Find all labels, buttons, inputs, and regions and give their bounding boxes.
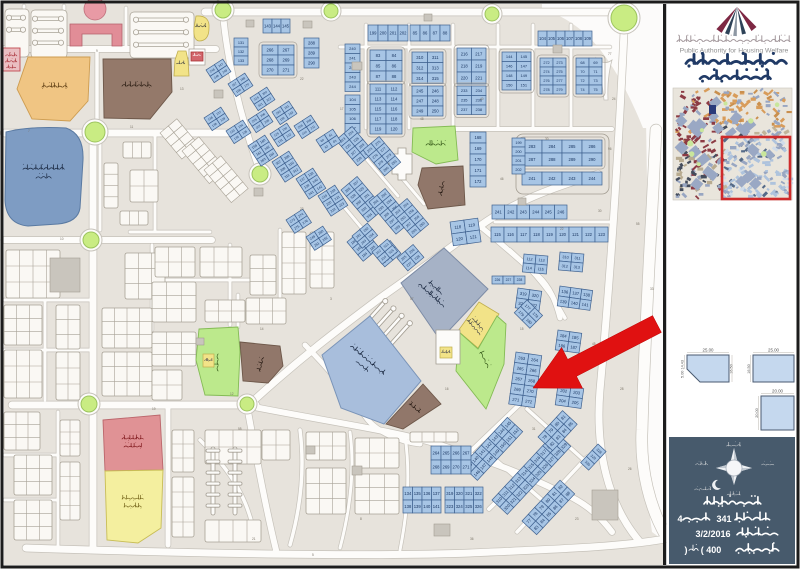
svg-text:113: 113 (538, 258, 544, 263)
svg-text:147: 147 (520, 64, 527, 69)
svg-text:138: 138 (583, 292, 591, 298)
svg-text:120: 120 (559, 232, 567, 237)
svg-text:135: 135 (414, 491, 422, 496)
svg-text:268: 268 (433, 465, 441, 470)
svg-text:171: 171 (475, 168, 483, 173)
svg-text:201: 201 (515, 159, 521, 163)
svg-text:104: 104 (539, 36, 547, 41)
svg-text:105: 105 (548, 36, 556, 41)
svg-text:73: 73 (593, 79, 597, 83)
svg-text:16.50: 16.50 (730, 364, 734, 374)
svg-text:219: 219 (475, 64, 483, 69)
svg-text:141: 141 (433, 504, 441, 509)
svg-text:168: 168 (475, 135, 483, 140)
svg-text:4: 4 (677, 514, 682, 524)
svg-text:226: 226 (495, 278, 501, 282)
svg-text:69: 69 (593, 61, 597, 65)
svg-text:11: 11 (130, 125, 134, 129)
svg-text:319: 319 (519, 291, 527, 297)
svg-text:243: 243 (349, 75, 356, 80)
svg-text:266: 266 (453, 451, 461, 456)
svg-text:139: 139 (414, 504, 422, 509)
svg-text:75: 75 (593, 88, 597, 92)
svg-text:202: 202 (560, 388, 568, 394)
svg-text:199: 199 (370, 31, 378, 36)
svg-text:131: 131 (238, 41, 244, 45)
svg-text:25.00: 25.00 (703, 348, 715, 353)
svg-text:40: 40 (480, 97, 484, 101)
svg-text:279: 279 (556, 88, 562, 92)
svg-text:270: 270 (267, 68, 275, 73)
svg-text:245: 245 (416, 89, 424, 94)
svg-text:149: 149 (520, 73, 527, 78)
svg-text:290: 290 (308, 61, 316, 66)
svg-text:200: 200 (515, 150, 521, 154)
svg-text:137: 137 (572, 290, 580, 296)
svg-text:323: 323 (446, 504, 454, 509)
svg-text:227: 227 (506, 278, 512, 282)
svg-text:117: 117 (375, 117, 382, 122)
svg-text:276: 276 (543, 79, 549, 83)
svg-text:55: 55 (636, 222, 640, 226)
svg-text:285: 285 (569, 144, 577, 149)
svg-text:264: 264 (531, 357, 539, 363)
svg-text:57: 57 (410, 297, 414, 301)
svg-text:241: 241 (495, 210, 503, 215)
svg-text:26: 26 (628, 467, 632, 471)
svg-text:271: 271 (463, 465, 471, 470)
svg-text:36: 36 (470, 537, 474, 541)
svg-text:314: 314 (416, 76, 424, 81)
svg-text:185: 185 (571, 334, 579, 340)
svg-text:241: 241 (349, 56, 356, 61)
svg-text:115: 115 (375, 107, 382, 112)
svg-text:28: 28 (620, 387, 624, 391)
svg-text:274: 274 (543, 70, 549, 74)
svg-text:132: 132 (238, 50, 244, 54)
svg-text:106: 106 (349, 116, 356, 121)
svg-text:140: 140 (423, 504, 431, 509)
svg-text:145: 145 (282, 24, 290, 29)
svg-text:267: 267 (515, 376, 523, 382)
svg-text:187: 187 (570, 344, 578, 350)
svg-text:17: 17 (340, 107, 344, 111)
svg-text:23: 23 (300, 207, 304, 211)
svg-text:238: 238 (475, 107, 482, 112)
svg-text:133: 133 (238, 59, 244, 63)
svg-text:324: 324 (456, 504, 464, 509)
svg-text:( 400: ( 400 (701, 545, 722, 555)
svg-text:136: 136 (423, 491, 431, 496)
svg-text:320: 320 (531, 292, 539, 298)
svg-text:242: 242 (507, 210, 515, 215)
svg-text:237: 237 (461, 107, 468, 112)
svg-text:24: 24 (612, 97, 616, 101)
svg-text:86: 86 (392, 63, 397, 68)
svg-text:151: 151 (520, 83, 527, 88)
svg-text:244: 244 (532, 210, 540, 215)
svg-text:111: 111 (375, 87, 382, 92)
svg-text:86: 86 (423, 31, 428, 36)
svg-text:287: 287 (529, 157, 537, 162)
svg-text:134: 134 (404, 491, 412, 496)
svg-text:5: 5 (312, 553, 314, 557)
svg-text:265: 265 (443, 451, 451, 456)
svg-text:7: 7 (28, 129, 30, 133)
svg-text:72: 72 (580, 79, 584, 83)
svg-text:271: 271 (512, 397, 520, 403)
svg-text:243: 243 (569, 176, 577, 181)
svg-text:84: 84 (392, 53, 397, 58)
svg-text:24: 24 (458, 202, 462, 206)
svg-text:235: 235 (461, 98, 468, 103)
svg-text:85: 85 (413, 31, 418, 36)
svg-text:120: 120 (391, 127, 399, 132)
svg-text:3: 3 (330, 297, 332, 301)
svg-text:6: 6 (388, 162, 390, 166)
svg-text:109: 109 (584, 36, 592, 41)
svg-text:144: 144 (273, 24, 281, 29)
svg-text:172: 172 (475, 179, 483, 184)
svg-text:267: 267 (463, 451, 471, 456)
svg-text:313: 313 (432, 65, 440, 70)
svg-text:25.00: 25.00 (768, 348, 780, 353)
svg-text:322: 322 (475, 491, 483, 496)
svg-text:19: 19 (152, 407, 156, 411)
svg-text:272: 272 (525, 399, 533, 405)
svg-text:22: 22 (560, 227, 564, 231)
svg-text:140: 140 (570, 300, 578, 306)
svg-text:145: 145 (520, 54, 527, 59)
svg-text:315: 315 (432, 76, 440, 81)
svg-text:250: 250 (432, 109, 440, 114)
svg-text:144: 144 (506, 54, 513, 59)
svg-text:289: 289 (308, 51, 316, 56)
svg-text:96: 96 (608, 147, 612, 151)
svg-text:136: 136 (561, 289, 569, 295)
svg-text:186: 186 (558, 343, 566, 349)
svg-text:264: 264 (433, 451, 441, 456)
svg-text:278: 278 (543, 88, 549, 92)
svg-text:170: 170 (475, 157, 483, 162)
svg-text:): ) (685, 545, 688, 555)
svg-text:266: 266 (529, 367, 537, 373)
svg-text:288: 288 (549, 157, 557, 162)
svg-text:288: 288 (308, 41, 316, 46)
svg-text:228: 228 (517, 278, 523, 282)
svg-text:268: 268 (528, 378, 536, 384)
svg-text:14: 14 (260, 327, 264, 331)
svg-text:105: 105 (349, 107, 356, 112)
svg-text:246: 246 (432, 89, 440, 94)
svg-text:169: 169 (475, 146, 483, 151)
svg-text:311: 311 (432, 55, 439, 60)
svg-text:204: 204 (559, 398, 567, 404)
svg-text:273: 273 (556, 61, 562, 65)
svg-text:283: 283 (529, 144, 537, 149)
svg-text:277: 277 (556, 79, 562, 83)
svg-text:119: 119 (375, 127, 382, 132)
svg-text:286: 286 (589, 144, 597, 149)
svg-text:118: 118 (391, 117, 398, 122)
svg-text:150: 150 (506, 83, 513, 88)
svg-text:233: 233 (461, 88, 468, 93)
svg-text:74: 74 (580, 88, 584, 92)
svg-text:83: 83 (376, 53, 381, 58)
svg-text:114: 114 (391, 97, 398, 102)
svg-text:270: 270 (526, 388, 534, 394)
svg-text:112: 112 (526, 257, 532, 262)
svg-text:240: 240 (349, 46, 356, 51)
svg-text:269: 269 (283, 58, 291, 63)
svg-text:267: 267 (283, 48, 291, 53)
svg-text:249: 249 (416, 109, 424, 114)
svg-text:148: 148 (506, 73, 513, 78)
svg-text:122: 122 (585, 232, 593, 237)
svg-text:10: 10 (60, 237, 64, 241)
svg-text:284: 284 (549, 144, 557, 149)
svg-text:107: 107 (566, 36, 574, 41)
svg-text:184: 184 (559, 333, 567, 339)
svg-text:116: 116 (391, 107, 398, 112)
svg-text:115: 115 (494, 232, 501, 237)
svg-text:30: 30 (598, 209, 602, 213)
svg-text:114: 114 (526, 266, 532, 271)
svg-text:106: 106 (557, 36, 565, 41)
svg-text:113: 113 (375, 97, 382, 102)
svg-text:245: 245 (545, 210, 553, 215)
svg-text:55: 55 (238, 427, 242, 431)
svg-text:88: 88 (443, 31, 448, 36)
svg-text:266: 266 (267, 48, 275, 53)
svg-text:269: 269 (514, 386, 522, 392)
svg-text:269: 269 (443, 465, 451, 470)
svg-text:248: 248 (432, 99, 440, 104)
svg-text:23: 23 (575, 517, 579, 521)
svg-text:268: 268 (267, 58, 275, 63)
svg-text:21: 21 (252, 537, 256, 541)
svg-text:120: 120 (456, 236, 464, 242)
svg-text:77: 77 (608, 52, 612, 56)
svg-text:270: 270 (453, 465, 461, 470)
svg-text:137: 137 (433, 491, 441, 496)
svg-text:46: 46 (500, 177, 504, 181)
svg-text:311: 311 (574, 256, 580, 261)
svg-text:22: 22 (300, 77, 304, 81)
svg-text:30: 30 (545, 137, 549, 141)
svg-text:123: 123 (598, 232, 606, 237)
svg-text:272: 272 (543, 61, 549, 65)
svg-text:121: 121 (469, 234, 477, 240)
svg-text:290: 290 (589, 157, 597, 162)
svg-text:88: 88 (392, 74, 397, 79)
svg-text:205: 205 (571, 400, 579, 406)
svg-text:117: 117 (520, 232, 527, 237)
svg-text:143: 143 (264, 24, 272, 29)
svg-text:104: 104 (349, 97, 356, 102)
svg-text:319: 319 (446, 491, 454, 496)
svg-text:220: 220 (461, 76, 469, 81)
svg-text:310: 310 (562, 255, 569, 260)
svg-text:70: 70 (580, 70, 584, 74)
svg-text:289: 289 (569, 157, 577, 162)
svg-text:5.00 14.43: 5.00 14.43 (681, 360, 685, 378)
svg-text:71: 71 (593, 70, 597, 74)
svg-text:200: 200 (380, 31, 388, 36)
svg-text:241: 241 (529, 176, 537, 181)
svg-text:139: 139 (560, 299, 568, 305)
svg-text:247: 247 (416, 99, 424, 104)
svg-text:112: 112 (391, 87, 398, 92)
svg-text:3/2/2016: 3/2/2016 (695, 529, 730, 539)
svg-text:217: 217 (475, 52, 483, 57)
svg-text:221: 221 (475, 76, 483, 81)
svg-text:12: 12 (230, 392, 234, 396)
svg-text:242: 242 (549, 176, 557, 181)
svg-text:15: 15 (520, 327, 524, 331)
svg-text:68: 68 (580, 61, 584, 65)
svg-text:234: 234 (475, 88, 482, 93)
svg-text:244: 244 (589, 176, 597, 181)
svg-text:87: 87 (376, 74, 381, 79)
svg-text:141: 141 (581, 302, 589, 308)
svg-text:312: 312 (561, 264, 568, 269)
svg-text:310: 310 (416, 55, 424, 60)
svg-text:320: 320 (456, 491, 464, 496)
svg-text:16: 16 (445, 387, 449, 391)
svg-text:9: 9 (96, 49, 98, 53)
svg-text:321: 321 (465, 491, 473, 496)
svg-text:341: 341 (716, 514, 731, 524)
svg-text:312: 312 (416, 65, 424, 70)
svg-text:33: 33 (650, 287, 654, 291)
svg-text:244: 244 (349, 84, 356, 89)
svg-text:275: 275 (556, 70, 562, 74)
svg-text:203: 203 (573, 390, 581, 396)
svg-text:216: 216 (461, 52, 469, 57)
svg-text:115: 115 (538, 267, 544, 272)
svg-text:118: 118 (533, 232, 540, 237)
svg-text:246: 246 (557, 210, 565, 215)
svg-text:87: 87 (433, 31, 438, 36)
svg-text:326: 326 (475, 504, 483, 509)
svg-text:121: 121 (572, 232, 580, 237)
svg-text:85: 85 (376, 63, 381, 68)
svg-text:146: 146 (506, 64, 513, 69)
svg-text:325: 325 (465, 504, 473, 509)
svg-text:108: 108 (575, 36, 583, 41)
svg-text:265: 265 (516, 366, 524, 372)
svg-text:199: 199 (515, 141, 521, 145)
svg-text:263: 263 (518, 355, 526, 361)
svg-text:31: 31 (532, 427, 536, 431)
svg-text:202: 202 (400, 31, 408, 36)
svg-text:313: 313 (573, 265, 580, 270)
svg-text:243: 243 (520, 210, 528, 215)
svg-text:271: 271 (283, 68, 291, 73)
svg-text:119: 119 (546, 232, 553, 237)
svg-text:116: 116 (507, 232, 514, 237)
svg-text:20.00: 20.00 (772, 389, 784, 394)
svg-text:201: 201 (390, 31, 398, 36)
svg-text:48: 48 (420, 117, 424, 121)
svg-text:218: 218 (461, 64, 469, 69)
svg-text:8: 8 (360, 517, 362, 521)
svg-text:13: 13 (180, 87, 184, 91)
svg-text:138: 138 (404, 504, 412, 509)
svg-text:202: 202 (515, 168, 521, 172)
